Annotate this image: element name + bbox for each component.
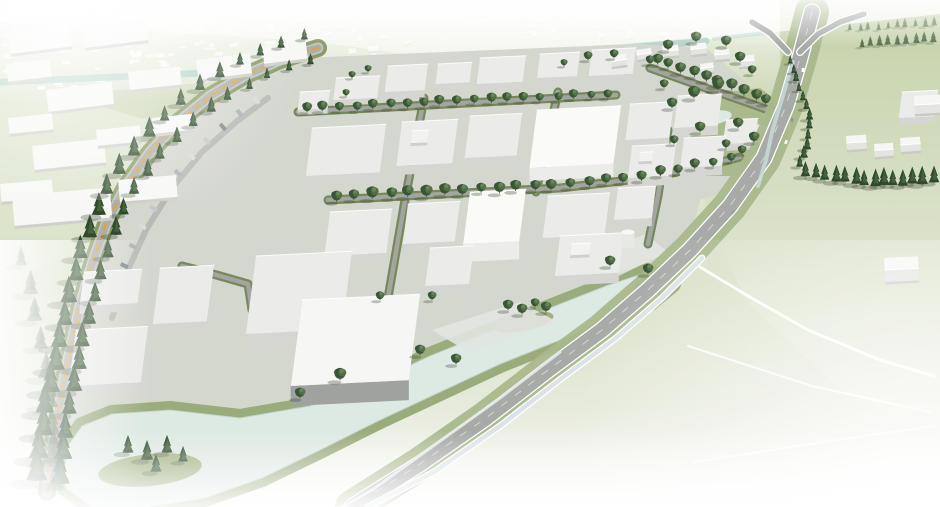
building-roof [410, 130, 428, 143]
building [291, 294, 420, 406]
tree-shadow [745, 100, 758, 104]
tree-shadow [497, 310, 509, 314]
building [435, 62, 472, 90]
building [153, 265, 214, 333]
tree-shadow [415, 107, 425, 110]
tree-canopy-light [539, 94, 542, 97]
building-roof [463, 189, 526, 244]
tree-shadow [665, 144, 675, 147]
tree-canopy-light [439, 96, 443, 100]
tree-shadow [786, 73, 794, 76]
tree-shadow [423, 300, 433, 303]
building-roof [614, 186, 656, 220]
tree-canopy-light [607, 90, 610, 93]
tree-shadow [327, 380, 341, 384]
building-roof [153, 265, 214, 324]
building [385, 64, 428, 99]
tree-shadow [720, 90, 733, 94]
tree-canopy-light [535, 181, 539, 185]
tree-canopy-light [737, 118, 741, 122]
tree-shadow [361, 72, 369, 74]
building [537, 52, 580, 85]
tree-canopy-light [462, 185, 466, 189]
tree-shadow [381, 198, 393, 202]
tree-shadow [729, 62, 741, 66]
tree-shadow [583, 99, 592, 102]
tree-shadow [743, 74, 753, 77]
tree-shadow [792, 91, 800, 94]
tree-canopy-light [668, 59, 672, 63]
tree-shadow [451, 195, 464, 199]
tree-shadow [733, 154, 743, 157]
tree-shadow [513, 102, 524, 105]
tree-canopy-light [506, 93, 509, 96]
gable-building [874, 143, 894, 160]
tree-canopy-light [622, 173, 626, 177]
tree-canopy-light [713, 158, 716, 161]
tree-shadow [655, 88, 665, 91]
tree-canopy-light [372, 99, 376, 103]
tree-canopy-light [391, 188, 395, 192]
tree-canopy-light [368, 66, 371, 69]
tree-canopy-light [693, 87, 697, 91]
tree-canopy-light [535, 299, 538, 302]
tree-canopy-light [752, 66, 755, 69]
tree-canopy-light [589, 177, 593, 181]
tree-canopy-light [444, 184, 448, 188]
tree-shadow [433, 195, 446, 199]
tree-canopy-light [481, 183, 485, 187]
tree-canopy-light [550, 180, 554, 184]
tree-shadow [596, 184, 608, 187]
tree-canopy-light [756, 90, 760, 94]
tree-canopy-light [474, 95, 477, 98]
tree-shadow [855, 47, 863, 49]
tree-shadow [695, 81, 707, 85]
tree-shadow [488, 193, 501, 197]
tree-shadow [732, 96, 745, 100]
tree-shadow [465, 103, 475, 106]
tree-canopy-light [558, 93, 561, 96]
tree-shadow [100, 234, 118, 239]
tree-shadow [471, 193, 482, 196]
tree-canopy-light [523, 93, 526, 96]
tree-shadow [790, 166, 801, 169]
tree-shadow [360, 199, 374, 203]
building-roof [680, 136, 726, 168]
building-roof-edge [640, 152, 653, 153]
tree-shadow [669, 73, 681, 77]
tree-canopy-light [674, 136, 677, 139]
tree-shadow [526, 307, 536, 310]
tree-shadow [429, 105, 441, 108]
building [628, 144, 676, 187]
tree-canopy-light [605, 174, 609, 178]
building-roof [639, 152, 653, 162]
tree-shadow [727, 128, 739, 132]
gable-building [714, 49, 730, 63]
tree-canopy-light [706, 71, 710, 75]
building-roof [529, 106, 621, 168]
tree-shadow [109, 214, 125, 219]
tree-canopy-light [573, 90, 576, 93]
building [529, 106, 621, 181]
building [410, 130, 428, 146]
tree-shadow [684, 169, 696, 173]
tree-canopy-light [380, 292, 383, 295]
tree-canopy-light [660, 166, 664, 170]
tree-shadow [560, 188, 571, 191]
tree-shadow [681, 98, 695, 102]
tree-shadow [631, 181, 643, 185]
tree-canopy-light [588, 52, 591, 55]
tree-shadow [784, 63, 792, 65]
tree-canopy-light [499, 183, 503, 187]
tree-canopy-light [699, 122, 703, 126]
tree-shadow [683, 77, 695, 81]
tree-canopy-light [407, 186, 411, 190]
tree-shadow [564, 99, 575, 102]
tree-canopy-light [426, 186, 430, 190]
tree-shadow [579, 187, 591, 191]
building-roof [625, 102, 674, 140]
tree-canopy-light [650, 56, 653, 59]
building [403, 201, 460, 253]
building [614, 186, 656, 228]
tree-canopy-light [564, 60, 567, 63]
tree-canopy-light [570, 179, 574, 183]
building-roof [403, 201, 460, 244]
tree-shadow [325, 202, 338, 206]
tree-canopy-light [641, 171, 645, 175]
tree-shadow [605, 58, 615, 61]
building-roof [435, 62, 472, 84]
tree-canopy-light [671, 98, 675, 102]
tree-shadow [717, 148, 727, 151]
tree-canopy-light [726, 140, 729, 143]
tree-shadow [613, 183, 624, 186]
tree-canopy-light [515, 181, 519, 185]
tree-shadow [704, 167, 714, 170]
tree-shadow [289, 398, 301, 402]
building [465, 113, 522, 168]
building-roof [543, 193, 610, 238]
tree-shadow [363, 109, 374, 112]
tree-canopy-light [419, 345, 423, 349]
tree-shadow [540, 190, 553, 194]
tree-canopy-light [545, 302, 549, 306]
tree-shadow [798, 109, 808, 112]
building-roof [385, 64, 428, 92]
tree-canopy-light [677, 165, 680, 168]
tree-shadow [579, 60, 589, 63]
tree-canopy-light [455, 354, 459, 358]
tree-shadow [550, 101, 560, 104]
tree-canopy-light [731, 79, 735, 83]
tree-canopy-light [657, 54, 661, 58]
tree-shadow [511, 314, 523, 318]
tree-shadow [445, 364, 457, 368]
tree-shadow [481, 103, 493, 106]
tree-shadow [920, 182, 935, 187]
scene-canvas [0, 0, 940, 507]
tree-shadow [650, 176, 662, 180]
tree-shadow [722, 162, 732, 165]
tree-canopy-light [743, 85, 747, 89]
tree-shadow [599, 99, 609, 102]
tree-shadow [381, 108, 392, 111]
tree-canopy-light [407, 99, 410, 102]
gable-building [914, 95, 940, 117]
tree-shadow [343, 200, 355, 204]
tree-canopy-light [742, 146, 745, 149]
building [425, 246, 474, 294]
tree-shadow [504, 191, 517, 195]
tree-canopy-light [753, 132, 757, 136]
tree-canopy-light [591, 91, 594, 94]
building-roof [537, 52, 580, 78]
tree-shadow [414, 197, 428, 201]
vignette-bottom-right [560, 240, 940, 507]
tree-shadow [398, 108, 409, 111]
tree-shadow [641, 64, 651, 67]
gable-building [846, 135, 867, 153]
tree-shadow [409, 355, 421, 359]
tree-shadow [531, 102, 541, 105]
tree-shadow [715, 46, 727, 50]
tree-shadow [447, 105, 458, 108]
tree-canopy-light [614, 50, 617, 53]
tree-canopy-light [423, 98, 426, 101]
tree-shadow [535, 312, 547, 316]
building-roof [465, 113, 522, 158]
tree-canopy-light [717, 79, 721, 83]
tree-canopy-light [491, 93, 495, 97]
tree-canopy-light [390, 99, 393, 102]
tree-canopy-light [739, 52, 743, 56]
tank-top [622, 230, 635, 235]
tree-canopy-light [680, 63, 684, 67]
tree-shadow [557, 66, 565, 68]
tree-canopy-light [456, 96, 459, 99]
building [396, 119, 458, 175]
tree-canopy-light [765, 95, 769, 99]
building-roof [291, 294, 420, 386]
building-roof [477, 56, 526, 84]
car [802, 68, 805, 72]
scene-root [0, 0, 940, 507]
tree-shadow [525, 190, 537, 194]
gable-building [900, 137, 921, 155]
tree-shadow [661, 108, 673, 112]
building [639, 152, 653, 165]
tree-shadow [756, 104, 767, 107]
tree-canopy-light [372, 187, 377, 192]
building [477, 56, 526, 91]
masterplan-render-image: Aerial 3D architectural rendering of a b… [0, 0, 940, 507]
tree-canopy-light [339, 369, 343, 373]
tree-shadow [689, 132, 701, 136]
building-roof [324, 209, 392, 256]
building [674, 94, 722, 137]
tree-shadow [371, 300, 381, 303]
building-roof [425, 246, 474, 286]
tree-shadow [795, 100, 804, 103]
tree-shadow [743, 142, 755, 146]
tree-canopy-light [694, 159, 698, 163]
tree-canopy-light [521, 304, 525, 308]
tree-shadow [658, 68, 669, 71]
tree-shadow [657, 50, 669, 54]
tree-shadow [787, 81, 797, 84]
tree-canopy-light [432, 292, 435, 295]
tree-canopy-light [664, 80, 667, 83]
tree-canopy-light [507, 300, 511, 304]
tree-shadow [497, 102, 508, 105]
tree-canopy-light [694, 66, 698, 70]
vignette-top-left [0, 0, 360, 200]
tree-shadow [396, 197, 409, 201]
tree-canopy-light [299, 388, 303, 392]
tree-shadow [668, 174, 679, 177]
tree-shadow [705, 90, 719, 94]
